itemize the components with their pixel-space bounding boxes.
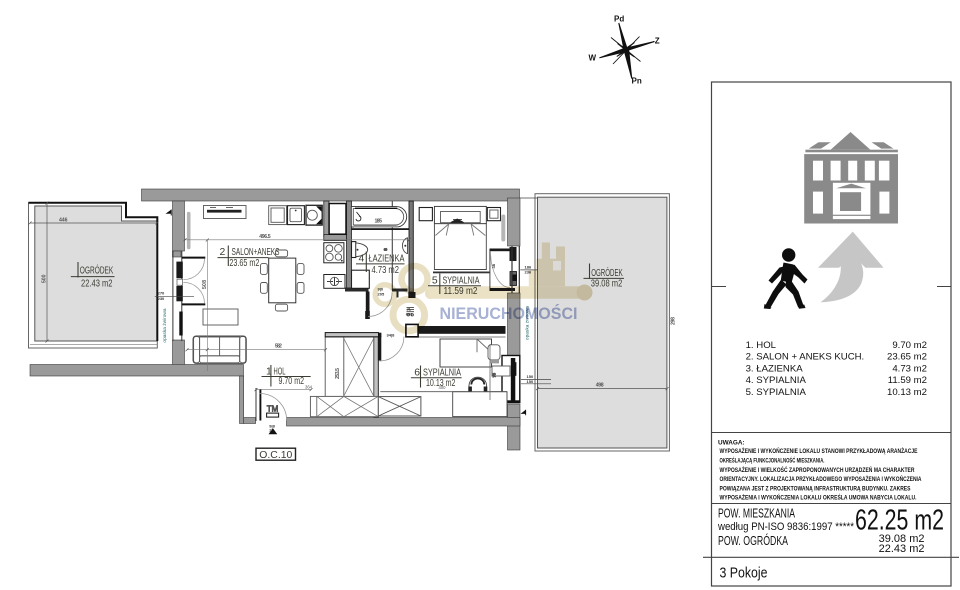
svg-text:WYPOSAŻENIE I WYKOŃCZENIE LOKA: WYPOSAŻENIE I WYKOŃCZENIE LOKALU STANOWI… <box>720 446 919 455</box>
svg-text:22.43 m2: 22.43 m2 <box>879 543 925 555</box>
svg-text:6: 6 <box>414 368 420 379</box>
svg-text:11.59 m2: 11.59 m2 <box>888 375 927 386</box>
svg-text:Z: Z <box>655 37 660 46</box>
svg-text:23.65 m2: 23.65 m2 <box>229 258 259 269</box>
svg-text:według PN-ISO 9836:1997 *****: według PN-ISO 9836:1997 ***** <box>717 521 854 533</box>
svg-text:Pn: Pn <box>632 77 642 86</box>
svg-text:22.43 m2: 22.43 m2 <box>81 278 113 289</box>
svg-text:POW. MIESZKANIA: POW. MIESZKANIA <box>718 506 795 521</box>
svg-text:POW. OGRÓDKA: POW. OGRÓDKA <box>718 533 788 548</box>
svg-text:23.65 m2: 23.65 m2 <box>887 352 927 363</box>
svg-text:496.5: 496.5 <box>259 234 271 240</box>
svg-text:3. ŁAZIENKA: 3. ŁAZIENKA <box>746 363 804 374</box>
svg-text:5: 5 <box>432 276 438 287</box>
svg-text:253.5: 253.5 <box>335 368 341 379</box>
svg-text:5. SYPIALNIA: 5. SYPIALNIA <box>746 387 807 398</box>
svg-text:508: 508 <box>202 280 208 289</box>
svg-text:498: 498 <box>596 382 604 388</box>
svg-text:500: 500 <box>42 274 48 283</box>
svg-text:OKREŚLAJĄCĄ FUNKCJONALNOŚĆ MIE: OKREŚLAJĄCĄ FUNKCJONALNOŚĆ MIESZKANIA. <box>720 456 825 465</box>
svg-text:000: 000 <box>406 312 413 317</box>
svg-text:34|8: 34|8 <box>387 333 396 338</box>
svg-text:1. HOL: 1. HOL <box>746 340 777 351</box>
svg-text:62.25 m2: 62.25 m2 <box>855 505 944 537</box>
svg-text:150: 150 <box>527 379 534 384</box>
svg-text:4.73 m2: 4.73 m2 <box>372 265 400 276</box>
svg-text:NIERUCHOMOŚCI: NIERUCHOMOŚCI <box>440 304 578 323</box>
svg-text:582: 582 <box>275 343 282 349</box>
svg-text:ŁAZIENKA: ŁAZIENKA <box>369 254 405 265</box>
svg-text:TM: TM <box>267 404 279 414</box>
svg-text:W: W <box>589 54 597 63</box>
svg-text:4.73 m2: 4.73 m2 <box>892 363 927 374</box>
svg-text:9.70 m2: 9.70 m2 <box>279 376 305 387</box>
svg-text:2. SALON + ANEKS KUCH.: 2. SALON + ANEKS KUCH. <box>746 352 865 363</box>
svg-text:3 Pokoje: 3 Pokoje <box>720 565 768 582</box>
svg-text:75: 75 <box>492 372 497 377</box>
svg-text:WYPOSAŻENIE I WIELKOŚĆ ZAPROPO: WYPOSAŻENIE I WIELKOŚĆ ZAPROPONOWANYCH U… <box>720 465 915 474</box>
svg-text:OGRÓDEK: OGRÓDEK <box>591 266 623 279</box>
svg-text:230: 230 <box>158 296 165 301</box>
svg-text:2: 2 <box>220 247 226 258</box>
svg-text:O.C.10: O.C.10 <box>259 449 292 461</box>
svg-text:4: 4 <box>359 254 365 265</box>
svg-text:Pd: Pd <box>614 15 624 24</box>
svg-text:205: 205 <box>378 291 385 296</box>
svg-text:POWIĄZANA JEST Z PROJEKTOWANĄ: POWIĄZANA JEST Z PROJEKTOWANĄ INFRASTRUK… <box>720 485 912 492</box>
svg-text:SALON+ANEKS: SALON+ANEKS <box>232 247 280 258</box>
svg-text:OGRÓDEK: OGRÓDEK <box>80 264 114 277</box>
svg-text:298: 298 <box>671 317 677 325</box>
svg-text:270: 270 <box>158 291 165 296</box>
svg-text:39.08 m2: 39.08 m2 <box>591 279 623 290</box>
svg-text:UWAGA:: UWAGA: <box>718 439 745 446</box>
svg-text:ORIENTACYJNY. LOKALIZACJA PRZY: ORIENTACYJNY. LOKALIZACJA PRZYKŁADOWEGO … <box>720 474 922 483</box>
svg-text:WYPOSAŻENIA I WYKOŃCZENIA LOKA: WYPOSAŻENIA I WYKOŃCZENIA LOKALU OKREŚLA… <box>720 493 917 502</box>
svg-text:10.13 m2: 10.13 m2 <box>887 387 927 398</box>
svg-text:400: 400 <box>439 385 447 390</box>
svg-text:opaska żwirowa: opaska żwirowa <box>162 308 168 342</box>
svg-text:9.70 m2: 9.70 m2 <box>892 340 927 351</box>
svg-text:185: 185 <box>375 218 383 224</box>
svg-text:38: 38 <box>491 263 496 268</box>
svg-text:446: 446 <box>59 218 68 224</box>
svg-text:4. SYPIALNIA: 4. SYPIALNIA <box>746 375 807 386</box>
